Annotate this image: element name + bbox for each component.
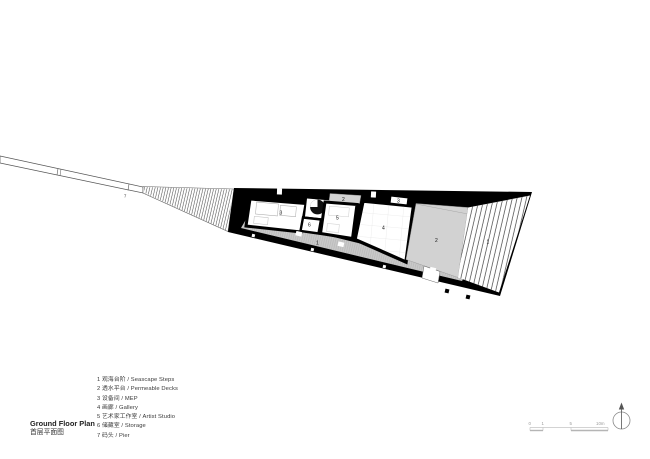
north-arrow-icon [613, 403, 630, 430]
legend-item: 3 设备间 / MEP [97, 395, 178, 404]
legend: 1 观海台阶 / Seascape Steps 2 透水平台 / Permeab… [97, 376, 178, 441]
label-steps-right: 1 [487, 240, 490, 246]
scale-1: 1 [542, 421, 545, 426]
scale-5: 5 [570, 421, 573, 426]
legend-item: 4 画廊 / Gallery [97, 404, 178, 413]
room-mep [246, 199, 306, 232]
label-mep: 3 [280, 211, 283, 217]
label-steps-band: 1 [316, 241, 319, 247]
label-mep-upper: 3 [397, 199, 400, 205]
seascape-steps-right [458, 196, 530, 293]
legend-item: 2 透水平台 / Permeable Decks [97, 385, 178, 394]
scale-0: 0 [529, 421, 532, 426]
label-deck-top: 2 [342, 197, 345, 203]
label-deck-right: 2 [435, 238, 438, 244]
pier: 7 [0, 156, 143, 199]
seascape-steps-left [143, 187, 234, 232]
pier-label: 7 [124, 194, 127, 199]
label-gallery: 4 [382, 226, 385, 232]
drawing-sheet: 7 [0, 0, 650, 459]
drawing-title-zh: 首层平面图 [30, 428, 95, 437]
legend-item: 7 码头 / Pier [97, 432, 178, 441]
legend-item: 1 观海台阶 / Seascape Steps [97, 376, 178, 385]
label-storage: 6 [308, 223, 311, 229]
scale-10m: 10m [596, 421, 605, 426]
legend-item: 6 储藏室 / Storage [97, 422, 178, 431]
label-studio: 5 [336, 216, 339, 222]
scale-bar: 0 1 5 10m [529, 421, 609, 431]
drawing-title-en: Ground Floor Plan [30, 419, 95, 428]
legend-item: 5 艺术家工作室 / Artist Studio [97, 413, 178, 422]
title-block: Ground Floor Plan 首层平面图 [30, 419, 95, 437]
